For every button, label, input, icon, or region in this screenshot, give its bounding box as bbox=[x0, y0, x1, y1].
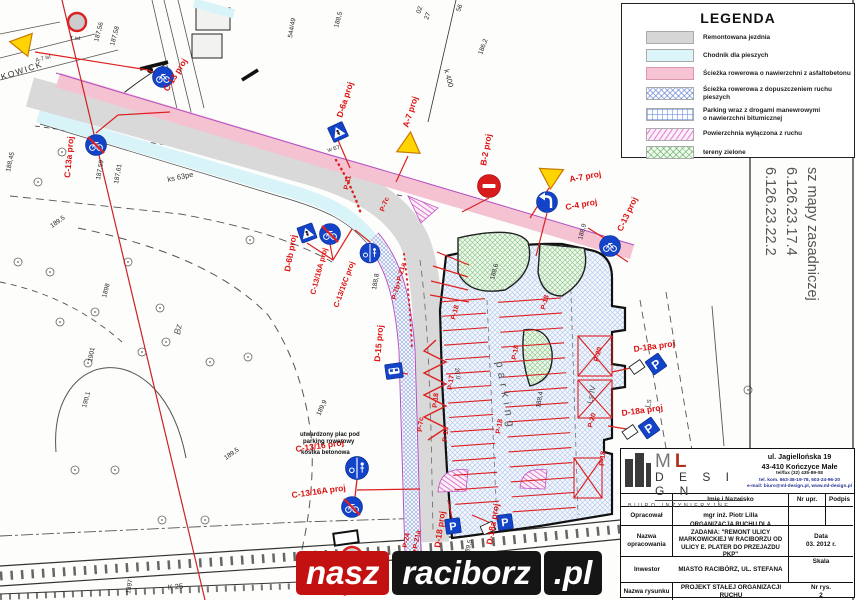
legend-item-label: Ścieżka rowerowa z dopuszczeniem ruchu p… bbox=[703, 86, 854, 102]
company-subtitle: BIURO INŻYNIERYJNE bbox=[628, 503, 743, 509]
sign-plate bbox=[629, 360, 645, 375]
sign-d18-parking-icon: P bbox=[445, 518, 462, 535]
land-use-label: Bz bbox=[172, 323, 184, 336]
parking-area bbox=[440, 244, 625, 538]
title-block-table: Imię i Nazwisko Nr upr. Podpis Opracował… bbox=[621, 494, 854, 600]
row-label: Inwestor bbox=[621, 557, 673, 583]
table-cell bbox=[826, 507, 853, 526]
sign-c4-turn-left-icon bbox=[537, 192, 558, 213]
company-name: ML bbox=[655, 452, 743, 471]
parcel-number-label: 1901 bbox=[87, 347, 96, 363]
address-line: 43-410 Kończyce Małe bbox=[745, 462, 854, 472]
elevation-label: 27 bbox=[423, 11, 432, 21]
marking-label: P-18 bbox=[442, 427, 450, 442]
note-label: parking rowerowy bbox=[303, 439, 355, 445]
sign-d18a-parking-icon: P bbox=[645, 353, 667, 375]
sign-c13-bike-path-icon bbox=[600, 236, 621, 257]
sign-label: A-7 proj bbox=[569, 169, 602, 184]
address-line: ul. Jagiellońska 19 bbox=[745, 452, 854, 462]
column-header: Nr upr. bbox=[789, 494, 826, 507]
elevation-label: 56 bbox=[455, 3, 464, 13]
row-value: ORGANIZACJA RUCHU DLA ZADANIA: "REMONT U… bbox=[673, 526, 789, 557]
title-block: ML D E S I G N BIURO INŻYNIERYJNE ul. Ja… bbox=[620, 448, 855, 598]
swatch-chodnik bbox=[646, 49, 694, 62]
sign-c13a-end-bike-path-icon bbox=[86, 135, 107, 156]
row-value: PROJEKT STAŁEJ ORGANIZACJI RUCHU bbox=[673, 583, 789, 600]
utility-label: K 25 bbox=[167, 581, 183, 592]
legend-item: Chodnik dla pieszych bbox=[646, 49, 854, 62]
legend-item: Parking wraz z drogami manewrowymio nawi… bbox=[646, 107, 854, 123]
sign-a7-yield-icon bbox=[397, 132, 427, 163]
marking-label: P-7c bbox=[417, 417, 425, 432]
swatch-remontowana-jezdnia bbox=[646, 31, 694, 44]
utility-label: k 400 bbox=[442, 68, 455, 88]
sign-label: D-18a proj bbox=[621, 402, 664, 418]
legend-panel: LEGENDA Remontowana jezdnia Chodnik dla … bbox=[621, 3, 855, 158]
sign-label: C-13/16A proj bbox=[291, 482, 346, 499]
watermark-raciborz: raciborz bbox=[392, 551, 540, 595]
sign-d6b-crossing-icon bbox=[297, 223, 318, 244]
swatch-parking bbox=[646, 108, 694, 121]
swatch-sciezka-shared bbox=[646, 87, 694, 100]
sign-label: C-13 proj bbox=[615, 195, 640, 233]
map-sheet-reference: sz mapy zasadniczej 6.126.23.17.4 6.126.… bbox=[759, 167, 822, 435]
land-use-label: Ls bbox=[643, 398, 653, 408]
info-plate bbox=[333, 530, 358, 545]
sign-label: D-6a proj bbox=[334, 80, 355, 118]
sign-b2-no-entry-icon bbox=[478, 175, 501, 198]
swatch-tereny-zielone bbox=[646, 146, 694, 159]
map-sheet-reference-line: 6.126.23.17.4 bbox=[780, 167, 801, 435]
sign-label: C-13/16C proj bbox=[331, 260, 356, 309]
drawing-number-cell: Nr rys. 2 bbox=[789, 583, 853, 600]
map-sheet-reference-line: sz mapy zasadniczej bbox=[801, 167, 822, 435]
parcel-number-label: 544/49 bbox=[287, 17, 297, 38]
elevation-label: 188,8 bbox=[371, 273, 381, 291]
elevation-label: 187,58 bbox=[109, 25, 121, 46]
watermark: nasz raciborz .pl bbox=[296, 551, 602, 595]
utility-label: ks 63pe bbox=[167, 170, 195, 184]
legend-item: tereny zielone bbox=[646, 146, 854, 159]
elevation-label: 187,61 bbox=[113, 163, 123, 184]
watermark-pl: .pl bbox=[544, 551, 603, 595]
sign-label: C-13/16A proj bbox=[308, 247, 329, 296]
legend-item-label: Remontowana jezdnia bbox=[703, 34, 770, 42]
legend-item: Powierzchnia wyłączona z ruchu bbox=[646, 128, 854, 141]
elevation-label: 189,9 bbox=[315, 399, 328, 417]
drawing-number-value: 2 bbox=[819, 592, 823, 600]
sign-d18a-parking-icon: P bbox=[638, 417, 660, 439]
legend-item-label: Ścieżka rowerowa o nawierzchni z asfalto… bbox=[703, 70, 851, 78]
sign-d6a-crossing-icon bbox=[327, 121, 348, 142]
manhole-marker bbox=[68, 13, 86, 31]
company-address: ul. Jagiellońska 19 43-410 Kończyce Małe… bbox=[745, 449, 854, 493]
sign-label: C-4 proj bbox=[565, 197, 598, 212]
contour-label: 189,5 bbox=[49, 214, 67, 229]
date-label: Data bbox=[814, 533, 828, 541]
legend-item-label: Parking wraz z drogami manewrowymio nawi… bbox=[703, 107, 820, 123]
parcel-number-label: 1897 bbox=[125, 579, 134, 595]
sign-c13-16a-shared-path-icon bbox=[342, 497, 363, 518]
elevation-label: 188,5 bbox=[333, 11, 344, 29]
existing-sign-label: T ist bbox=[70, 36, 81, 42]
sign-c13-16-shared-path-icon bbox=[346, 457, 369, 480]
sign-a7-yield-existing-icon bbox=[10, 33, 39, 60]
email-line: e-mail: biuro@ml-design.pl, www.ml-desig… bbox=[745, 484, 854, 490]
sign-label: D-15 proj bbox=[372, 325, 385, 363]
legend-item-label: Chodnik dla pieszych bbox=[703, 52, 768, 60]
elevation-label: 188,45 bbox=[5, 151, 16, 172]
sign-a7-yield-icon bbox=[538, 168, 563, 189]
existing-sign-label: A-7 ist bbox=[35, 54, 52, 64]
building-icon bbox=[625, 453, 651, 487]
sign-label: B-2 proj bbox=[478, 133, 493, 166]
sign-label: D-18a proj bbox=[633, 338, 676, 354]
column-header: Podpis bbox=[826, 494, 853, 507]
legend-item-label: tereny zielone bbox=[703, 149, 746, 157]
sign-plate bbox=[622, 425, 638, 440]
note-label: kostka betonowa bbox=[301, 450, 350, 456]
company-name-design: D E S I G N bbox=[655, 471, 743, 501]
legend-title: LEGENDA bbox=[622, 10, 854, 26]
marking-label: P-18 bbox=[599, 451, 607, 466]
legend-item: Ścieżka rowerowa z dopuszczeniem ruchu p… bbox=[646, 86, 854, 102]
sign-label: A-7 proj bbox=[400, 95, 419, 129]
table-cell bbox=[789, 507, 826, 526]
elevation-label: 02 bbox=[415, 5, 424, 15]
date-cell: Data 03. 2012 r. bbox=[789, 526, 853, 557]
drawing-number-label: Nr rys. bbox=[811, 584, 831, 592]
legend-item: Remontowana jezdnia bbox=[646, 31, 854, 44]
note-label: utwardzony plac pod bbox=[300, 432, 360, 438]
elevation-label: 186,2 bbox=[477, 38, 489, 56]
row-label: Nazwa rysunku bbox=[621, 583, 673, 600]
row-label: Nazwa opracowania bbox=[621, 526, 673, 557]
swatch-sciezka-asfalt bbox=[646, 67, 694, 80]
swatch-powierzchnia-wylaczona bbox=[646, 128, 694, 141]
sign-label: C-13a proj bbox=[62, 136, 76, 178]
legend-item-label: Powierzchnia wyłączona z ruchu bbox=[703, 130, 802, 138]
row-value: MIASTO RACIBÓRZ, UL. STEFANA bbox=[673, 557, 789, 583]
company-logo: ML D E S I G N BIURO INŻYNIERYJNE bbox=[621, 449, 745, 493]
sign-c13-16c-shared-path-icon bbox=[360, 243, 380, 263]
watermark-nasz: nasz bbox=[296, 551, 389, 595]
legend-item: Ścieżka rowerowa o nawierzchni z asfalto… bbox=[646, 67, 854, 80]
row-label: Opracował bbox=[621, 507, 673, 526]
sign-label: D-6b proj bbox=[282, 234, 298, 272]
title-block-header: ML D E S I G N BIURO INŻYNIERYJNE ul. Ja… bbox=[621, 449, 854, 494]
elevation-label: 187,56 bbox=[93, 21, 105, 42]
parcel-number-label: 1898 bbox=[101, 282, 112, 298]
scale-cell: Skala bbox=[789, 557, 853, 583]
marking-label: P-18 bbox=[432, 393, 440, 408]
date-value: 03. 2012 r. bbox=[806, 541, 836, 549]
traffic-organization-plan-sheet: P P P P C-13 proj C-13a proj D-6a proj A… bbox=[0, 0, 857, 600]
sign-c13-16a-shared-path-icon bbox=[320, 224, 341, 245]
map-sheet-reference-line: 6.126.23.22.2 bbox=[759, 167, 780, 435]
sign-d15-bus-stop-icon bbox=[385, 362, 404, 379]
utility-label: w 67 bbox=[326, 145, 341, 155]
contour-label: 189,5 bbox=[223, 446, 241, 461]
contour-label: 190,1 bbox=[81, 391, 92, 409]
